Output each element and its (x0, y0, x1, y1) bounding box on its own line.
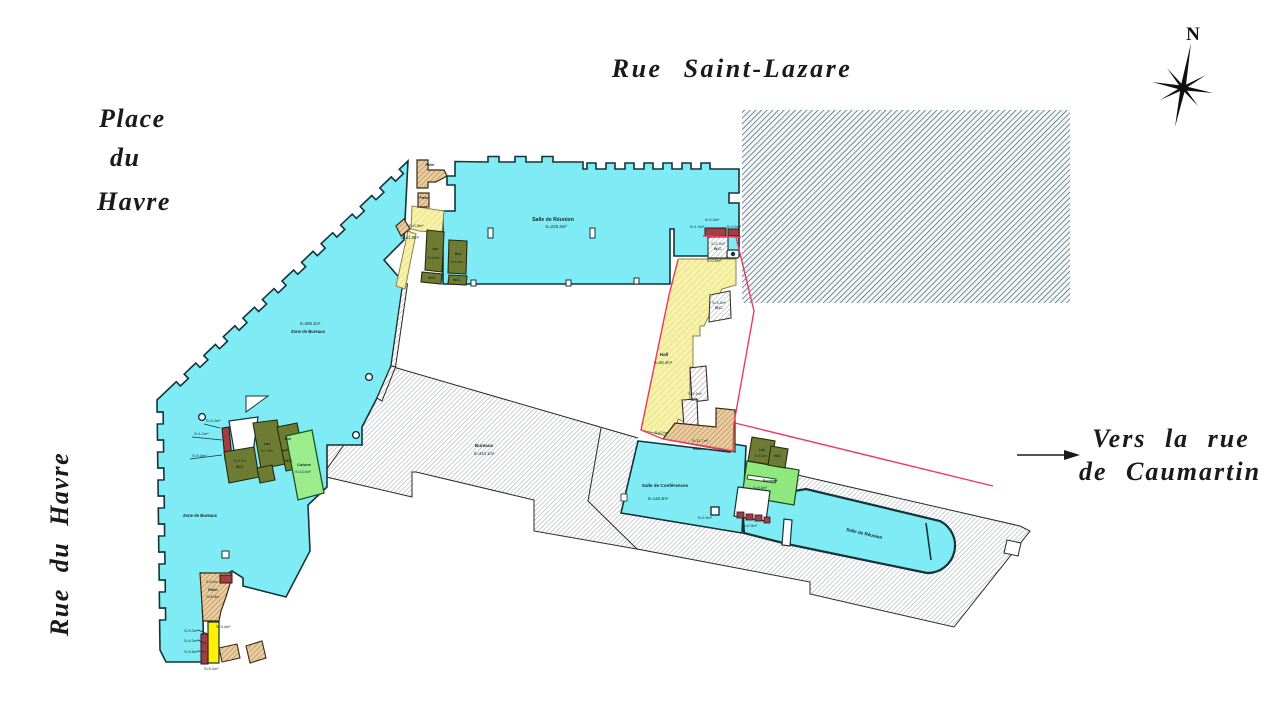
svg-text:S=6.5m²: S=6.5m² (428, 256, 442, 260)
svg-text:W.C.: W.C. (453, 278, 461, 282)
svg-text:S=66.4m²: S=66.4m² (654, 360, 673, 365)
svg-text:Rue Saint-Lazare: Rue Saint-Lazare (611, 54, 853, 83)
svg-text:S=0.5m²: S=0.5m² (707, 259, 722, 263)
svg-text:S=146.3m²: S=146.3m² (648, 496, 669, 501)
svg-text:Zone de Bureaux: Zone de Bureaux (183, 513, 218, 518)
svg-text:Lav: Lav (264, 442, 270, 446)
svg-text:S=226.3m²: S=226.3m² (545, 224, 567, 229)
svg-text:W.C.: W.C. (285, 459, 293, 463)
svg-text:Bur: Bur (285, 437, 292, 441)
svg-text:S=0.2m²: S=0.2m² (184, 639, 199, 643)
svg-text:S=0.5m²: S=0.5m² (408, 223, 424, 228)
svg-text:Bur: Bur (455, 252, 462, 256)
svg-text:Place: Place (98, 104, 166, 133)
svg-text:W.C.: W.C. (714, 247, 722, 251)
svg-text:S=0.3m²: S=0.3m² (705, 218, 720, 222)
svg-text:Salle de Conférences: Salle de Conférences (642, 483, 689, 488)
svg-text:S=1.3m²: S=1.3m² (690, 225, 705, 229)
svg-text:W.C.: W.C. (774, 454, 782, 458)
svg-text:Lav: Lav (432, 247, 438, 251)
svg-text:S=0.5m²: S=0.5m² (727, 225, 742, 229)
svg-text:S=7.0m²: S=7.0m² (261, 449, 275, 453)
svg-text:Zone de Bureaux: Zone de Bureaux (291, 329, 326, 334)
svg-text:A.S.: A.S. (691, 398, 698, 402)
svg-text:S=11.7m²: S=11.7m² (692, 439, 709, 443)
svg-text:Havre: Havre (96, 187, 171, 216)
svg-text:S=0.9m²: S=0.9m² (698, 516, 713, 520)
svg-text:S=0.4m²: S=0.4m² (206, 580, 218, 584)
svg-text:S=2.2m²: S=2.2m² (688, 392, 702, 396)
svg-text:W.C.: W.C. (236, 465, 244, 469)
svg-text:W.C.: W.C. (428, 276, 436, 280)
svg-text:Salle de Réunion: Salle de Réunion (532, 217, 574, 223)
svg-text:de Caumartin: de Caumartin (1079, 457, 1261, 486)
svg-text:Bureaux: Bureaux (475, 443, 494, 448)
svg-text:S=5.3m²: S=5.3m² (712, 301, 726, 305)
svg-text:S=3.4m²: S=3.4m² (216, 625, 231, 629)
svg-text:Vers la rue: Vers la rue (1092, 424, 1250, 453)
svg-text:S=9.3m²: S=9.3m² (753, 486, 767, 490)
svg-text:B.C.: B.C. (715, 306, 723, 310)
svg-text:S=0.6m²: S=0.6m² (184, 650, 199, 654)
svg-text:Palier: Palier (426, 163, 436, 167)
svg-text:S=8.9m²: S=8.9m² (207, 595, 221, 599)
svg-text:du: du (110, 143, 140, 172)
svg-text:Palier: Palier (208, 588, 218, 592)
svg-text:S=0.2m²: S=0.2m² (204, 667, 219, 671)
svg-text:S=0.9m²: S=0.9m² (743, 524, 758, 528)
svg-text:Escalier: Escalier (763, 479, 778, 483)
svg-text:Palier: Palier (420, 196, 430, 200)
svg-text:S=13.0m²: S=13.0m² (295, 470, 311, 474)
svg-text:S=0.3m²: S=0.3m² (184, 629, 199, 633)
svg-text:Cuisine: Cuisine (297, 463, 311, 467)
svg-text:N: N (1186, 24, 1200, 45)
svg-text:S=6.1m²: S=6.1m² (755, 454, 769, 458)
svg-text:Rue du Havre: Rue du Havre (45, 452, 74, 637)
svg-text:Lav: Lav (759, 448, 765, 452)
svg-text:S=0.2m²: S=0.2m² (206, 419, 221, 423)
svg-text:S=2.3m²: S=2.3m² (711, 242, 725, 246)
svg-text:S=11.0m²: S=11.0m² (401, 235, 420, 240)
svg-text:S=1.1m²: S=1.1m² (194, 432, 209, 436)
svg-text:S=6.3m²: S=6.3m² (451, 260, 465, 264)
svg-text:S=4.7m²: S=4.7m² (234, 459, 248, 463)
svg-text:S=0.4m²: S=0.4m² (655, 431, 670, 435)
svg-text:S=343.1m²: S=343.1m² (474, 451, 495, 456)
svg-text:S=396.1m²: S=396.1m² (300, 321, 321, 326)
svg-text:Hall: Hall (660, 352, 668, 357)
svg-text:Palier: Palier (693, 447, 704, 451)
